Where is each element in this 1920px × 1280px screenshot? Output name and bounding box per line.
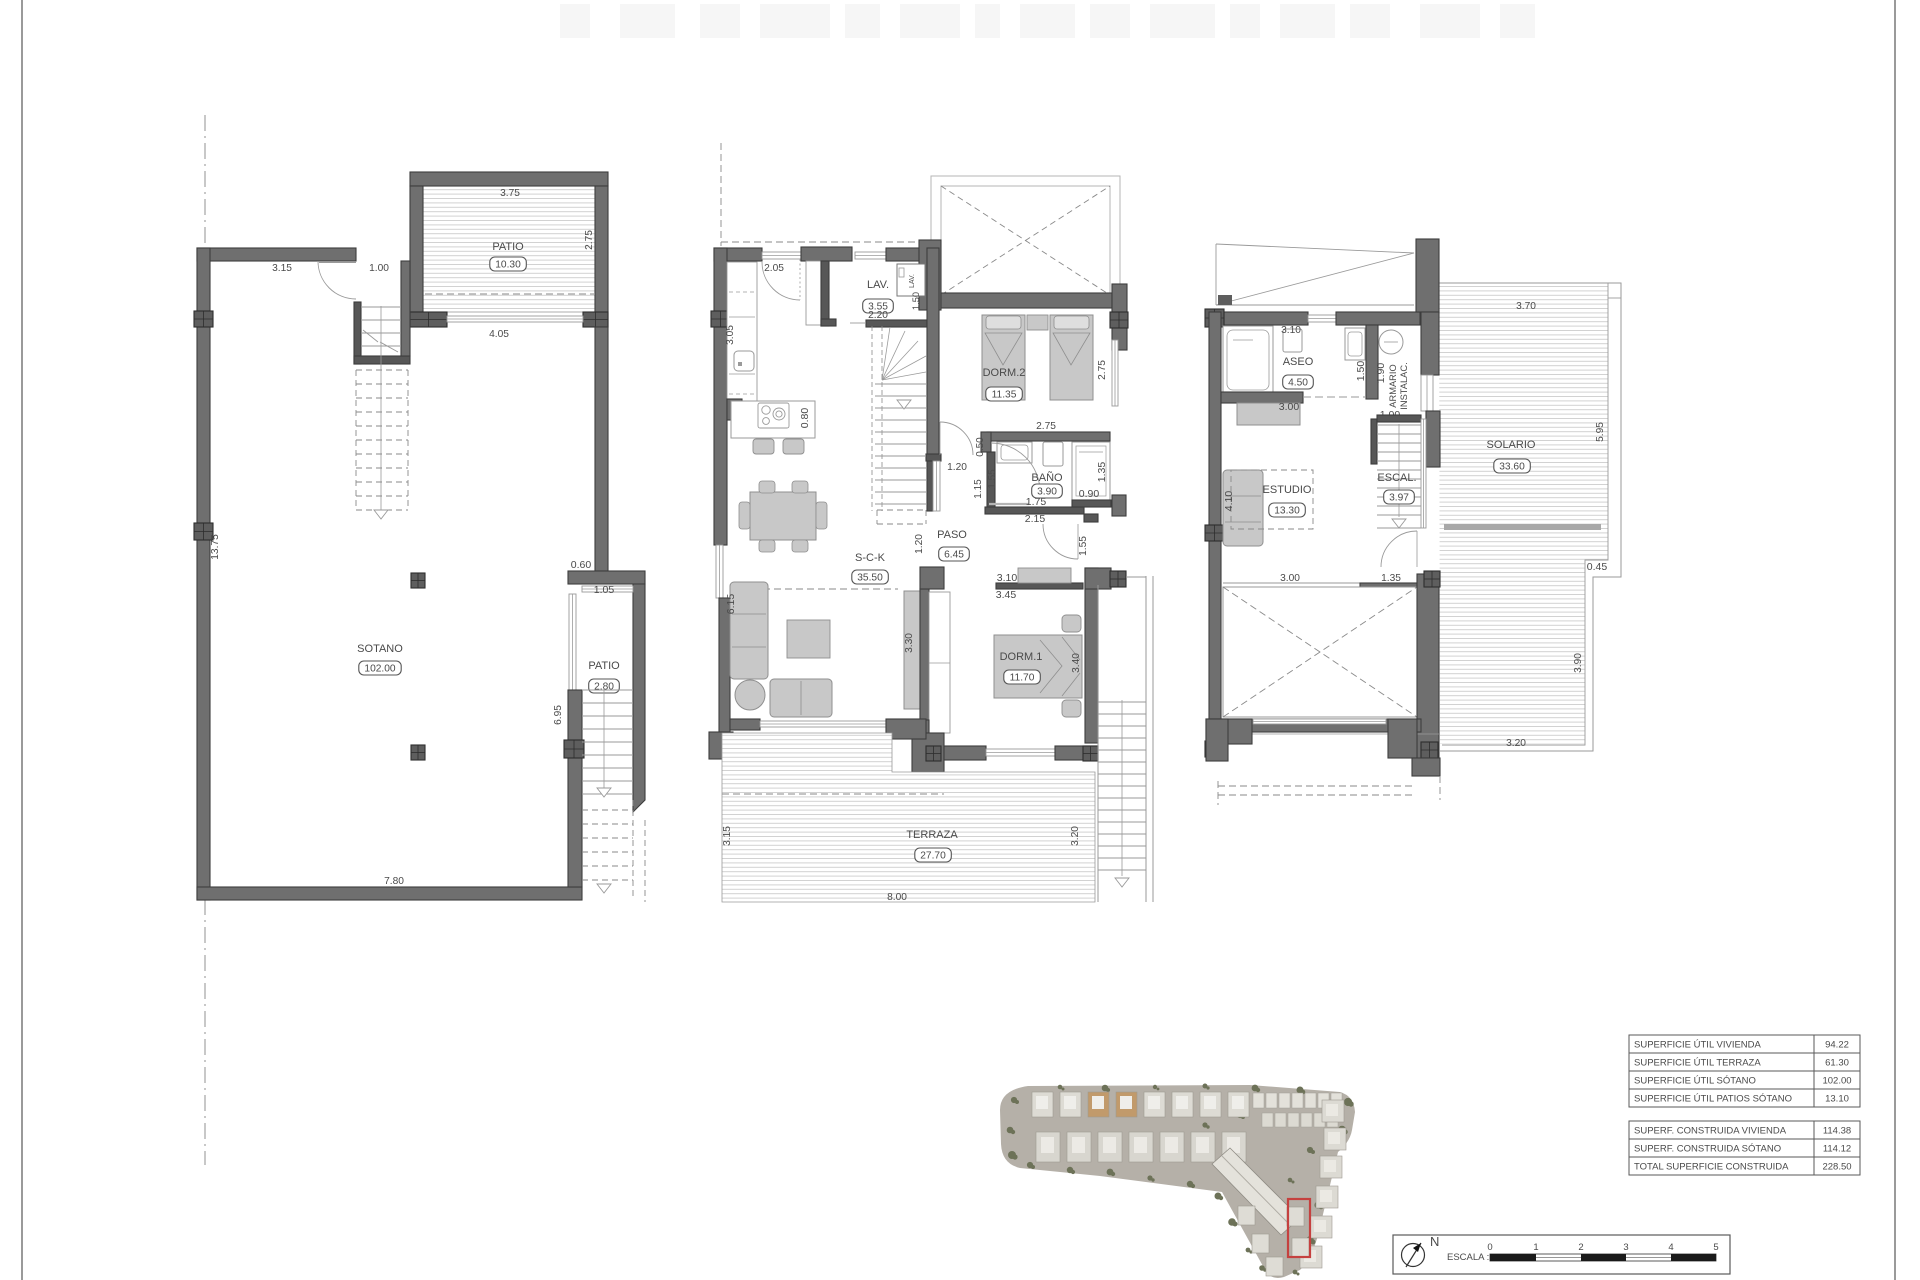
svg-text:1.75: 1.75	[1026, 496, 1047, 508]
svg-text:1.55: 1.55	[987, 469, 998, 489]
svg-text:2.75: 2.75	[584, 230, 595, 250]
svg-text:BAÑO: BAÑO	[1031, 471, 1063, 484]
svg-text:114.12: 114.12	[1823, 1144, 1851, 1155]
svg-text:0.80: 0.80	[799, 408, 811, 429]
svg-text:3.10: 3.10	[997, 572, 1018, 584]
svg-text:94.22: 94.22	[1825, 1040, 1849, 1051]
svg-text:5: 5	[1713, 1242, 1718, 1253]
svg-text:5.95: 5.95	[1595, 422, 1606, 442]
svg-text:4.10: 4.10	[1223, 491, 1235, 512]
svg-text:7.80: 7.80	[384, 876, 404, 887]
svg-text:3.20: 3.20	[1070, 826, 1081, 846]
svg-text:3.00: 3.00	[1280, 573, 1300, 584]
svg-text:1.35: 1.35	[1381, 573, 1401, 584]
svg-text:3.90: 3.90	[1573, 653, 1584, 673]
svg-text:1.50: 1.50	[1355, 361, 1367, 382]
svg-text:6.95: 6.95	[553, 705, 564, 725]
svg-text:SOLARIO: SOLARIO	[1487, 439, 1536, 451]
svg-text:2: 2	[1578, 1242, 1583, 1253]
svg-text:3.40: 3.40	[1071, 653, 1082, 673]
svg-text:LAV.: LAV.	[867, 279, 889, 291]
svg-text:TERRAZA: TERRAZA	[906, 829, 958, 841]
svg-text:6.45: 6.45	[944, 550, 964, 561]
svg-text:DORM.2: DORM.2	[983, 367, 1026, 379]
svg-text:3.20: 3.20	[1506, 738, 1526, 749]
svg-text:3.05: 3.05	[725, 325, 736, 345]
svg-text:3.70: 3.70	[1516, 301, 1536, 312]
svg-text:102.00: 102.00	[1822, 1076, 1851, 1087]
svg-text:SUPERFICIE ÚTIL SÓTANO: SUPERFICIE ÚTIL SÓTANO	[1634, 1076, 1756, 1087]
svg-text:4.50: 4.50	[1288, 378, 1308, 389]
svg-text:3.97: 3.97	[1389, 493, 1409, 504]
svg-text:SUPERF. CONSTRUIDA SÓTANO: SUPERF. CONSTRUIDA SÓTANO	[1634, 1144, 1781, 1155]
svg-text:35.50: 35.50	[857, 573, 883, 584]
svg-text:PATIO: PATIO	[492, 241, 524, 253]
svg-text:1.05: 1.05	[594, 584, 615, 596]
svg-text:1.35: 1.35	[1096, 462, 1108, 483]
svg-text:13.30: 13.30	[1274, 506, 1300, 517]
svg-text:ESCAL.: ESCAL.	[1377, 472, 1416, 484]
svg-text:11.70: 11.70	[1010, 673, 1035, 684]
svg-text:1.20: 1.20	[947, 462, 967, 473]
svg-text:3.45: 3.45	[996, 589, 1017, 601]
svg-text:102.00: 102.00	[364, 664, 395, 675]
svg-text:PATIO: PATIO	[588, 660, 620, 672]
svg-text:SUPERFICIE ÚTIL PATIOS SÓTANO: SUPERFICIE ÚTIL PATIOS SÓTANO	[1634, 1094, 1792, 1105]
svg-text:3: 3	[1623, 1242, 1628, 1253]
svg-text:INSTALAC.: INSTALAC.	[1399, 362, 1409, 409]
svg-text:S-C-K: S-C-K	[855, 552, 886, 564]
svg-text:ESCALA :: ESCALA :	[1447, 1252, 1489, 1263]
svg-text:SUPERFICIE ÚTIL VIVIENDA: SUPERFICIE ÚTIL VIVIENDA	[1634, 1040, 1762, 1051]
svg-text:13.75: 13.75	[210, 534, 221, 560]
svg-text:0.90: 0.90	[1079, 488, 1100, 500]
svg-text:2.05: 2.05	[764, 263, 784, 274]
svg-text:2.75: 2.75	[1097, 360, 1108, 380]
svg-text:N: N	[1430, 1234, 1439, 1249]
svg-text:228.50: 228.50	[1822, 1162, 1851, 1173]
svg-text:10.30: 10.30	[495, 260, 521, 271]
svg-text:3.75: 3.75	[500, 188, 520, 199]
svg-text:ESTUDIO: ESTUDIO	[1263, 484, 1312, 496]
svg-text:LAV.: LAV.	[909, 274, 916, 288]
svg-text:33.60: 33.60	[1499, 462, 1525, 473]
svg-text:SOTANO: SOTANO	[357, 643, 403, 655]
svg-text:3.15: 3.15	[722, 826, 733, 846]
svg-text:TOTAL SUPERFICIE CONSTRUIDA: TOTAL SUPERFICIE CONSTRUIDA	[1634, 1162, 1789, 1173]
svg-text:ASEO: ASEO	[1283, 356, 1314, 368]
svg-text:SUPERFICIE ÚTIL TERRAZA: SUPERFICIE ÚTIL TERRAZA	[1634, 1058, 1761, 1069]
svg-text:0.45: 0.45	[1587, 561, 1608, 573]
svg-text:4: 4	[1668, 1242, 1673, 1253]
svg-text:27.70: 27.70	[920, 851, 946, 862]
svg-text:2.20: 2.20	[868, 310, 888, 321]
svg-text:1: 1	[1533, 1242, 1538, 1253]
svg-text:ARMARIO: ARMARIO	[1388, 364, 1398, 407]
svg-text:1.00: 1.00	[369, 263, 389, 274]
svg-text:0.60: 0.60	[571, 559, 592, 571]
svg-text:1.90: 1.90	[1375, 363, 1387, 384]
svg-text:61.30: 61.30	[1825, 1058, 1849, 1069]
svg-text:11.35: 11.35	[992, 390, 1017, 401]
svg-text:114.38: 114.38	[1823, 1126, 1851, 1137]
svg-text:SUPERF. CONSTRUIDA VIVIENDA: SUPERF. CONSTRUIDA VIVIENDA	[1634, 1126, 1787, 1137]
svg-text:2.75: 2.75	[1036, 421, 1056, 432]
svg-text:3.00: 3.00	[1279, 401, 1300, 413]
svg-text:3.10: 3.10	[1281, 325, 1301, 336]
svg-text:6.15: 6.15	[725, 594, 737, 615]
svg-text:3.30: 3.30	[904, 633, 915, 653]
svg-text:8.00: 8.00	[887, 892, 907, 903]
svg-text:1.15: 1.15	[973, 479, 984, 499]
svg-text:DORM.1: DORM.1	[1000, 651, 1043, 663]
svg-text:0.50: 0.50	[975, 437, 986, 457]
svg-text:1.20: 1.20	[914, 534, 925, 554]
svg-text:13.10: 13.10	[1825, 1094, 1849, 1105]
svg-text:0: 0	[1487, 1242, 1492, 1253]
svg-text:3.15: 3.15	[272, 263, 292, 274]
svg-text:PASO: PASO	[937, 529, 967, 541]
svg-text:2.15: 2.15	[1025, 513, 1046, 525]
svg-text:1.55: 1.55	[1078, 536, 1089, 556]
svg-text:1.50: 1.50	[911, 292, 921, 310]
svg-text:4.05: 4.05	[489, 329, 509, 340]
